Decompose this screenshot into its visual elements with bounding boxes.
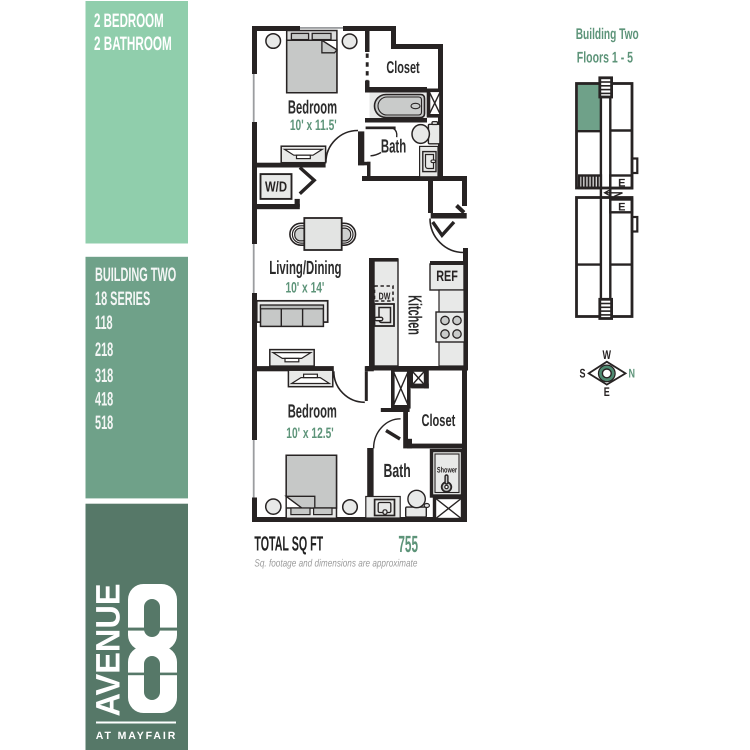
svg-text:BUILDING TWO: BUILDING TWO [95,264,176,286]
svg-text:N: N [629,367,636,381]
svg-text:755: 755 [398,531,418,557]
svg-text:W: W [603,348,612,362]
svg-text:Bedroom: Bedroom [288,98,337,119]
svg-text:TOTAL SQ FT: TOTAL SQ FT [254,533,323,556]
svg-text:Building Two: Building Two [576,26,639,43]
svg-text:Sq. footage and dimensions are: Sq. footage and dimensions are approxima… [254,558,417,570]
svg-text:Bedroom: Bedroom [288,402,337,423]
svg-text:Closet: Closet [386,58,419,77]
svg-text:Bath: Bath [383,461,410,482]
svg-text:518: 518 [95,412,113,434]
svg-text:418: 418 [95,389,113,411]
svg-text:Bath: Bath [381,137,406,158]
svg-text:W/D: W/D [265,180,287,196]
svg-text:DW: DW [379,292,391,303]
svg-text:Closet: Closet [422,411,456,430]
svg-text:18 SERIES: 18 SERIES [95,288,150,310]
svg-text:2 BATHROOM: 2 BATHROOM [94,33,172,55]
svg-text:AVENUE: AVENUE [90,584,128,717]
svg-text:Kitchen: Kitchen [404,295,425,335]
svg-text:Living/Dining: Living/Dining [269,258,341,279]
svg-text:REF: REF [436,268,458,285]
svg-text:318: 318 [95,365,113,387]
svg-text:E: E [618,201,625,213]
svg-text:AT MAYFAIR: AT MAYFAIR [96,730,177,742]
svg-text:10' x 12.5': 10' x 12.5' [286,425,333,442]
svg-text:Shower: Shower [437,466,457,475]
svg-text:Floors 1 - 5: Floors 1 - 5 [577,50,633,67]
svg-text:218: 218 [95,339,113,361]
svg-text:10' x 14': 10' x 14' [285,280,324,297]
svg-text:2 BEDROOM: 2 BEDROOM [94,10,164,32]
svg-text:E: E [618,177,625,189]
svg-text:E: E [604,385,610,399]
svg-text:10' x 11.5': 10' x 11.5' [290,117,337,134]
svg-text:118: 118 [95,312,113,334]
svg-text:S: S [579,367,585,381]
